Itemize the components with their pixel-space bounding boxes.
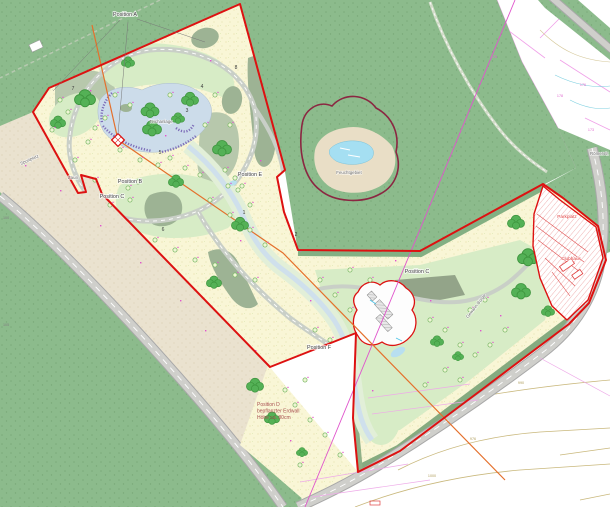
parcel-number: 173 [588, 128, 594, 132]
survey-mark [430, 300, 431, 301]
survey-mark [100, 225, 101, 226]
wetland-pond [329, 141, 373, 165]
survey-mark [205, 330, 206, 331]
hole-number: 4 [201, 84, 204, 90]
map-root: Position APosition BPosition CPosition E… [0, 0, 610, 507]
area-label: Feuchtgebiet [336, 170, 362, 175]
position-label: Position B [118, 179, 143, 185]
hole-number: 5 [159, 150, 162, 156]
facility-label: Clubhaus [561, 256, 581, 261]
farm-complex [353, 281, 416, 346]
survey-mark [210, 60, 211, 61]
survey-mark [480, 330, 481, 331]
site-plan-map: Position APosition BPosition CPosition E… [0, 0, 610, 507]
survey-mark [240, 240, 241, 241]
elevation-label: 105 [3, 323, 9, 327]
survey-mark [180, 300, 181, 301]
survey-mark [290, 440, 291, 441]
survey-mark [500, 315, 501, 316]
position-d-note-line: bepflanzter Erdwall [257, 409, 300, 415]
hole-number: 6 [162, 227, 165, 233]
survey-mark [310, 300, 311, 301]
area-label: Römerstr. [590, 151, 609, 156]
facility-label: Parkplatz [557, 214, 577, 219]
survey-mark [150, 40, 151, 41]
hole-number: 1 [243, 210, 246, 216]
elevation-label: 100 [3, 216, 9, 220]
hole-number: 3 [186, 108, 189, 114]
parcel-number: 176 [580, 83, 586, 87]
position-label: Position C [405, 269, 430, 275]
hole-number: 8 [235, 65, 238, 71]
position-d-note-line: Höhe ca. 80cm [257, 415, 291, 421]
position-label: Position F [307, 345, 332, 351]
survey-mark [372, 390, 373, 391]
hole-number: 7 [72, 86, 75, 92]
survey-mark [60, 190, 61, 191]
position-label: Position C [100, 194, 125, 200]
survey-mark [165, 135, 166, 136]
survey-mark [25, 165, 26, 166]
contour-label: 1000 [428, 474, 436, 478]
contour-label: 990 [518, 381, 524, 385]
contour-label: 976 [470, 437, 476, 441]
survey-mark [90, 90, 91, 91]
survey-mark [395, 260, 396, 261]
hole-number: 2 [295, 232, 298, 238]
parcel-number: 175 [491, 55, 497, 59]
position-label: Position E [238, 172, 263, 178]
area-label: Zaun [68, 175, 79, 180]
survey-mark [140, 262, 141, 263]
position-label: Position A [113, 12, 137, 18]
parcel-number: 178 [557, 94, 563, 98]
survey-mark [260, 160, 261, 161]
position-d-note-line: Position D [257, 402, 280, 408]
area-label: Teichanlage [149, 119, 173, 124]
